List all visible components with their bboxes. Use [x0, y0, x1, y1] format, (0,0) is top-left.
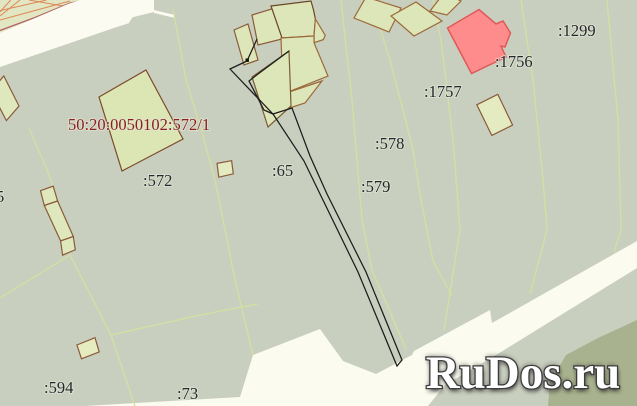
svg-text::579: :579: [361, 177, 390, 196]
svg-text::73: :73: [177, 384, 198, 403]
svg-text::578: :578: [375, 134, 404, 153]
svg-text:50:20:0050102:572/1: 50:20:0050102:572/1: [68, 115, 210, 134]
svg-text:RuDos.ru: RuDos.ru: [426, 347, 621, 399]
svg-text::1757: :1757: [424, 82, 462, 101]
svg-text::1756: :1756: [495, 52, 533, 71]
svg-text::572: :572: [143, 171, 172, 190]
svg-text::1299: :1299: [558, 21, 596, 40]
svg-text:5: 5: [0, 187, 4, 206]
svg-text::594: :594: [44, 378, 73, 397]
svg-text::65: :65: [272, 161, 293, 180]
